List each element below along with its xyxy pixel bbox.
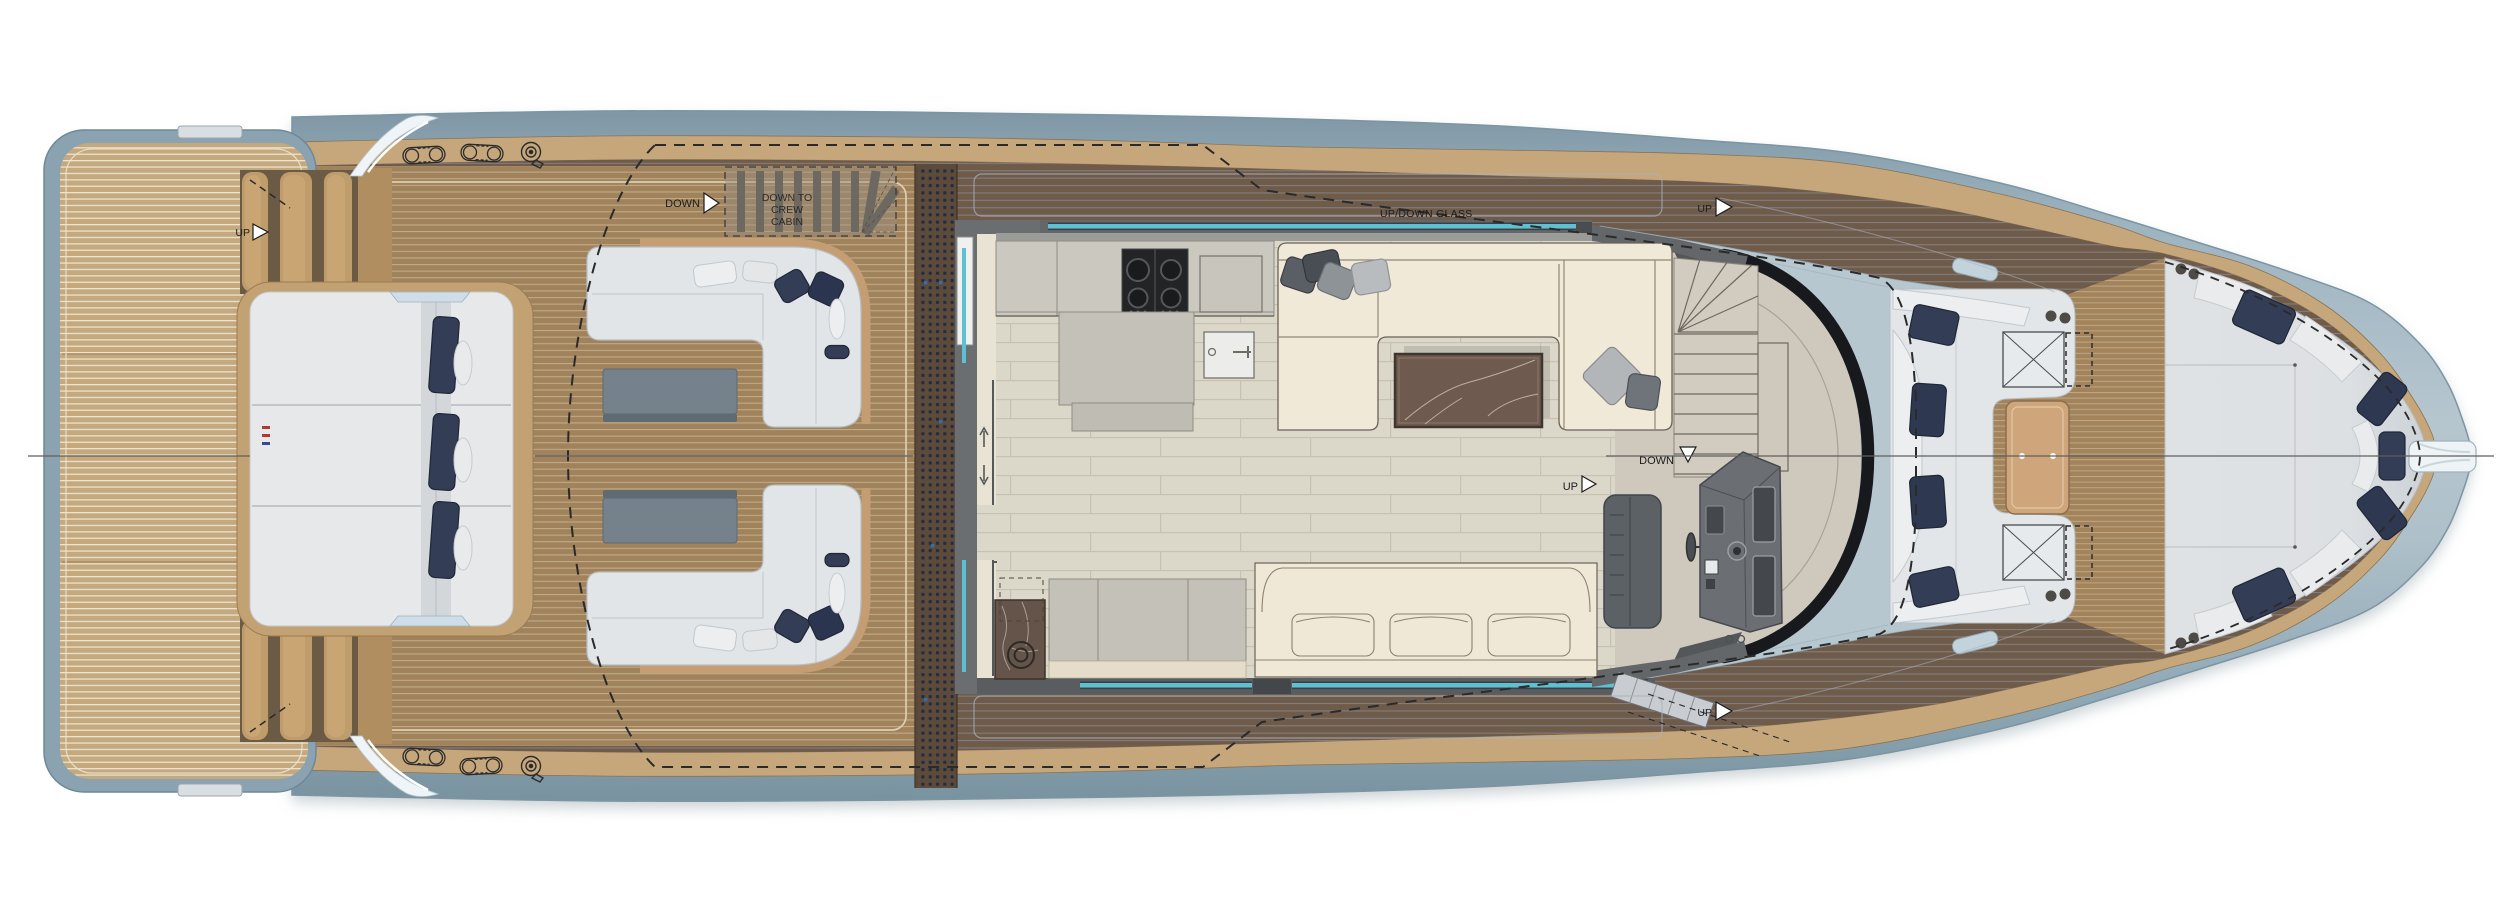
svg-text:CREW: CREW <box>771 204 803 216</box>
svg-text:UP: UP <box>235 227 250 239</box>
svg-text:DOWN: DOWN <box>1639 455 1674 467</box>
svg-text:UP: UP <box>1697 707 1712 719</box>
svg-text:UP/DOWN GLASS: UP/DOWN GLASS <box>1380 208 1473 220</box>
svg-text:CABIN: CABIN <box>771 216 803 228</box>
svg-text:UP: UP <box>1563 481 1578 493</box>
svg-text:DOWN TO: DOWN TO <box>762 192 812 204</box>
svg-text:DOWN: DOWN <box>665 198 700 210</box>
svg-text:UP: UP <box>1697 203 1712 215</box>
